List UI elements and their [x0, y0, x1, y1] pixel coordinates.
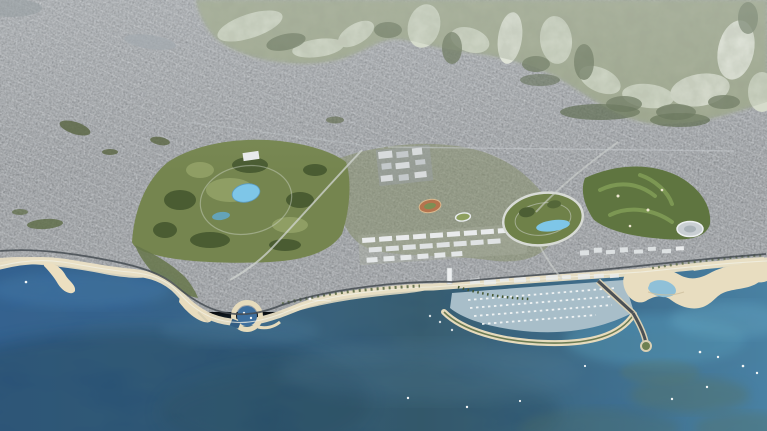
- atmospheric-haze: [0, 0, 767, 431]
- aerial-city-screenshot: [0, 0, 767, 431]
- aerial-scene: [0, 0, 767, 431]
